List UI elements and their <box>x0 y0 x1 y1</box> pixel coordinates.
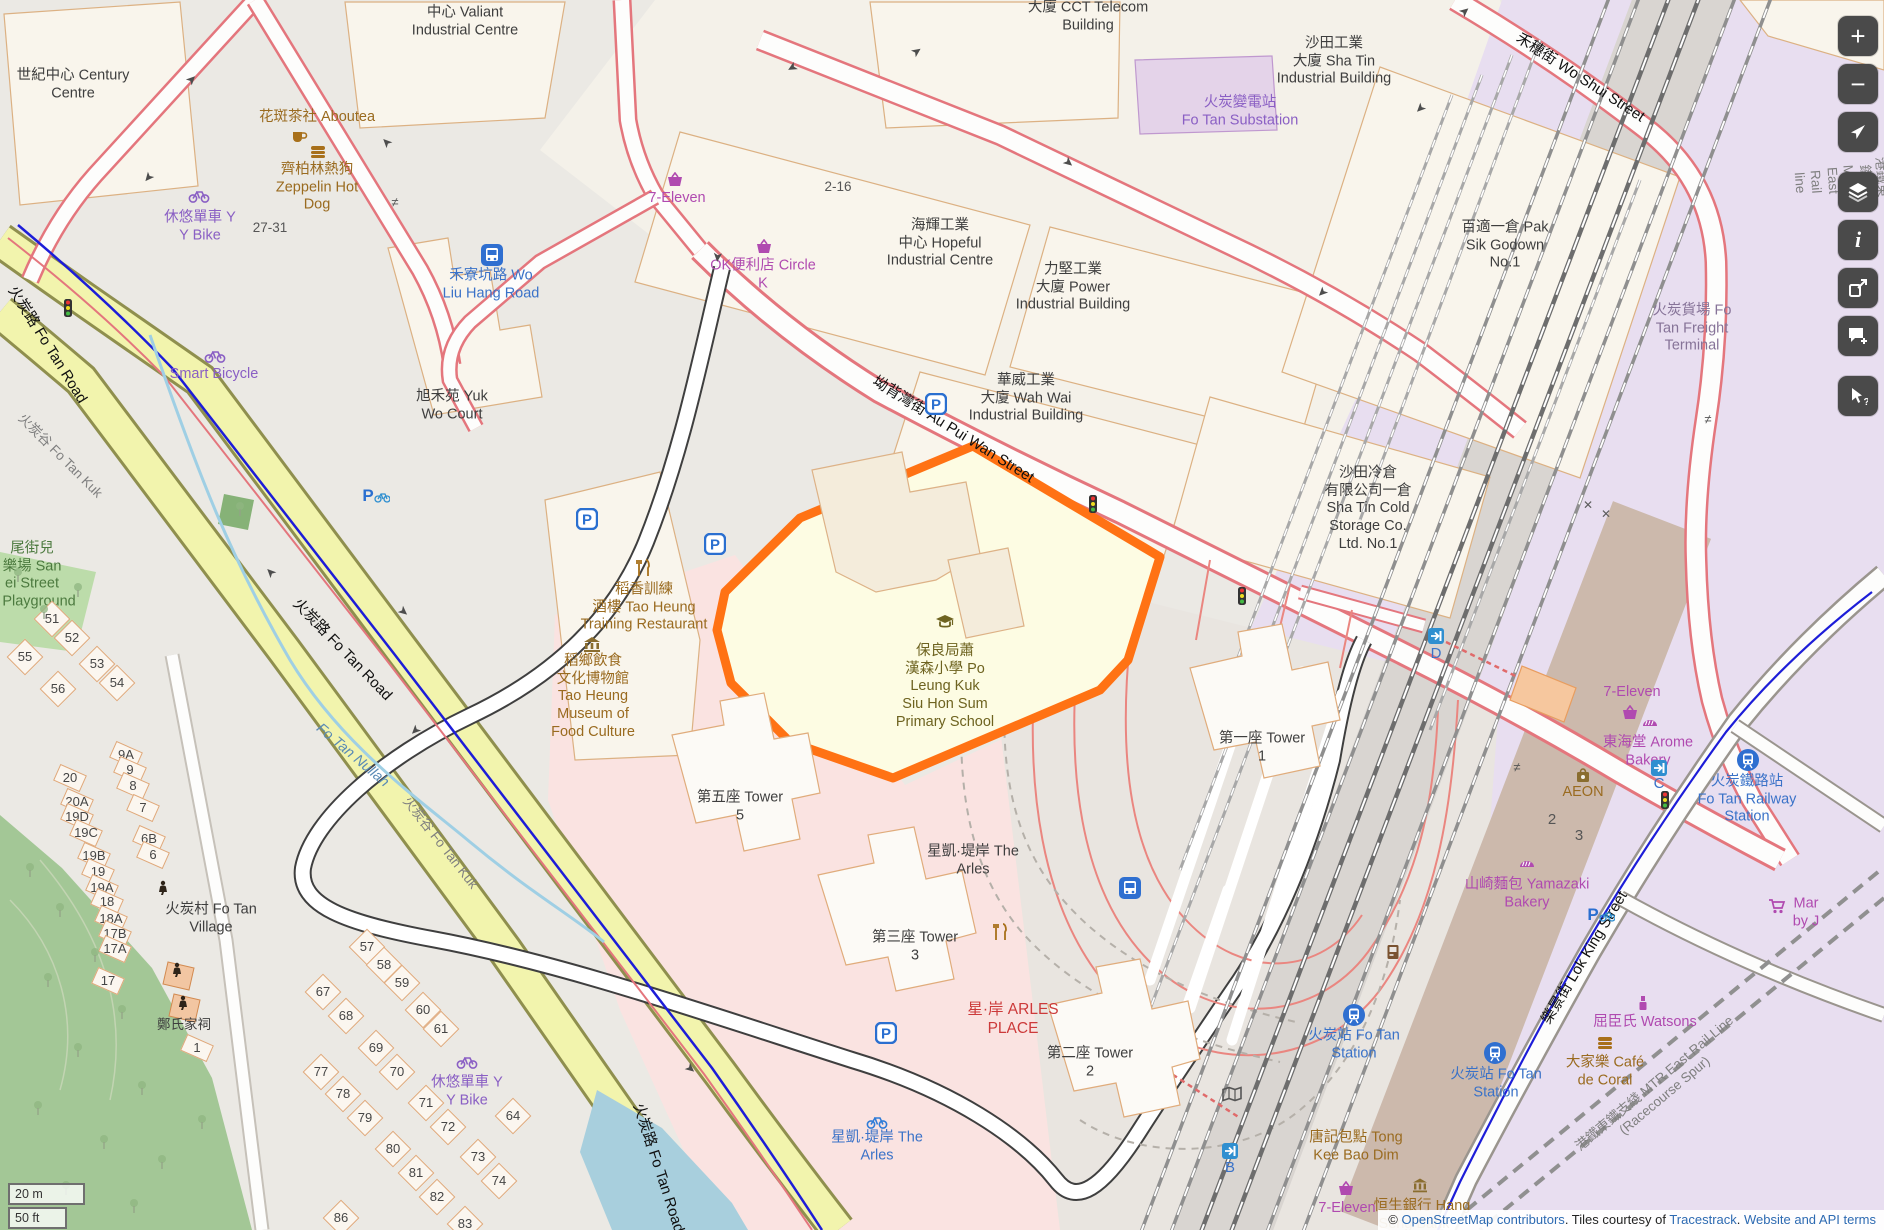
locate-button[interactable] <box>1838 112 1878 152</box>
control-group: ? <box>1838 376 1878 416</box>
control-group: +− <box>1838 16 1878 152</box>
map-canvas[interactable] <box>0 0 1884 1230</box>
query-features-button[interactable]: ? <box>1838 376 1878 416</box>
scale-metric: 20 m <box>8 1183 85 1205</box>
scale-imperial: 50 ft <box>8 1207 67 1229</box>
note-button[interactable] <box>1838 316 1878 356</box>
layers-button[interactable] <box>1838 172 1878 212</box>
zoom-out-button[interactable]: − <box>1838 64 1878 104</box>
control-group: i <box>1838 172 1878 356</box>
share-button[interactable] <box>1838 268 1878 308</box>
attribution-bar: © OpenStreetMap contributors. Tiles cour… <box>1378 1210 1884 1230</box>
svg-text:?: ? <box>1864 397 1869 406</box>
tracestrack-link[interactable]: Tracestrack <box>1669 1212 1736 1227</box>
legend-button[interactable]: i <box>1838 220 1878 260</box>
substation-building <box>1135 56 1277 134</box>
zoom-in-button[interactable]: + <box>1838 16 1878 56</box>
map-controls: +−i? <box>1838 16 1878 436</box>
terms-link[interactable]: Website and API terms <box>1744 1212 1876 1227</box>
scale-indicator: 20 m 50 ft <box>8 1183 85 1230</box>
map-viewport[interactable]: 世紀中心 Century Centre中心 Valiant Industrial… <box>0 0 1884 1230</box>
osm-contributors-link[interactable]: OpenStreetMap contributors <box>1402 1212 1565 1227</box>
